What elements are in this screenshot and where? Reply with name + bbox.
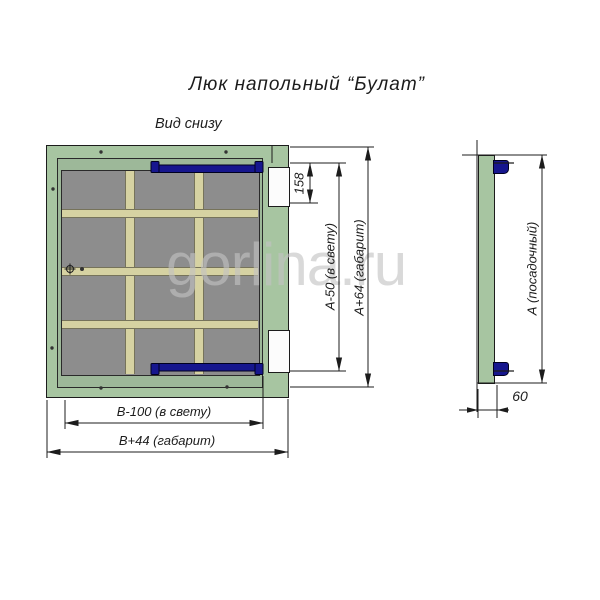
drawing-title: Люк напольный “Булат” [147,74,467,96]
dim-label-158: 158 [292,164,307,204]
view-label: Вид снизу [155,116,222,132]
dim-label-depth: 60 [500,388,540,404]
dim-label-clear-width: В-100 (в свету) [94,404,234,419]
dim-label-overall-width: В+44 (габарит) [97,433,237,448]
dim-label-seating-height: А (посадочный) [525,194,540,344]
dim-label-clear-height: А-50 (в свету) [323,202,338,332]
dim-label-overall-height: А+64 (габарит) [352,198,367,338]
technical-drawing-page: Люк напольный “Булат” Вид снизу [0,0,600,600]
